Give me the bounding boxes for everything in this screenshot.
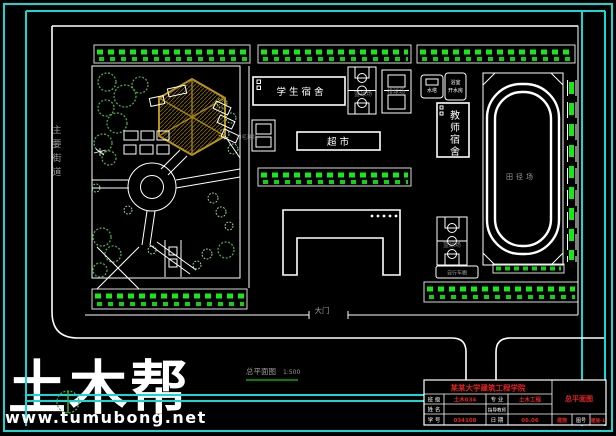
student-dorm-building: 学 生 宿 舍 xyxy=(253,77,345,105)
bike-shed-label: 自行车棚 xyxy=(447,270,467,277)
bathhouse-label: 浴室 xyxy=(450,79,460,86)
basketball-court-south: 篮球场 xyxy=(437,217,467,265)
teaching-building-dots xyxy=(371,215,398,218)
hedge-strip-bottom-west xyxy=(92,289,247,309)
caption-title: 总平面图 xyxy=(246,366,276,376)
teacher-dorm-building: 教 师 宿 舍 xyxy=(437,103,469,158)
supermarket-label: 超 市 xyxy=(327,136,350,148)
cad-site-plan-sheet: 土木帮 主 要 街 道 大门 xyxy=(0,0,616,436)
water-tower-label: 水塔 xyxy=(427,87,437,94)
park-paths xyxy=(92,136,240,289)
supermarket-building: 超 市 xyxy=(297,132,380,150)
title-block: 某某大学建筑工程学院 总平面图 班 级 土木034 专 业 土木工程 姓 名 指… xyxy=(424,380,606,425)
teacher-dorm-char: 宿 xyxy=(450,133,460,146)
street-char: 街 xyxy=(52,152,61,164)
site-plan-drawing: 土木帮 主 要 街 道 大门 xyxy=(0,0,616,436)
running-track: 田径场 xyxy=(483,73,563,265)
bike-shed: 自行车棚 xyxy=(436,266,478,278)
major-label: 专 业 xyxy=(491,396,504,404)
volleyball-label: 排球场 xyxy=(387,88,405,96)
gate-label: 大门 xyxy=(315,305,330,315)
basketball-label: 篮球场 xyxy=(354,90,372,98)
sheet-no-label: 图号 xyxy=(576,418,586,424)
date-value: 06.06 xyxy=(521,418,539,424)
sheet-type-value: 建施 xyxy=(556,417,567,424)
water-tower-building: 水塔 xyxy=(421,75,443,98)
advisor-label: 指导教师 xyxy=(488,407,507,414)
name-label: 姓 名 xyxy=(428,406,441,414)
roundabout-outer xyxy=(128,163,176,211)
volleyball-court: 排球场 xyxy=(382,70,411,113)
pavilion xyxy=(159,79,225,155)
street-char: 道 xyxy=(52,166,61,178)
teacher-dorm-char: 师 xyxy=(450,121,460,134)
teacher-dorm-char: 教 xyxy=(450,109,460,122)
class-value: 土木034 xyxy=(454,396,477,404)
badminton-court: 羽毛球场 xyxy=(236,120,275,151)
street-char: 要 xyxy=(52,139,61,150)
track-field-label: 田径场 xyxy=(506,172,536,181)
main-street-label: 主 要 街 道 xyxy=(52,124,61,178)
street-char: 主 xyxy=(52,124,61,136)
caption: 总平面图 1:500 xyxy=(246,366,300,380)
date-label: 日 期 xyxy=(491,417,504,424)
teaching-building xyxy=(283,210,400,275)
basketball-label: 篮球场 xyxy=(443,241,461,249)
boiler-room-label: 开水房 xyxy=(448,87,463,94)
class-label: 班 级 xyxy=(428,396,441,404)
hedge-strip-middle xyxy=(258,168,411,186)
project-title: 某某大学建筑工程学院 xyxy=(451,383,526,393)
id-value: 034108 xyxy=(454,418,477,424)
hedge-strip-track-east xyxy=(568,80,577,262)
caption-scale: 1:500 xyxy=(283,369,300,376)
bathhouse-building: 浴室 开水房 xyxy=(445,73,466,100)
watermark-url: www.tumubong.net xyxy=(5,408,207,427)
roundabout-inner xyxy=(141,176,164,199)
sheet-no-value: 建施-1 xyxy=(590,417,605,424)
hedge-strip-top-3 xyxy=(417,45,575,63)
major-value: 土木工程 xyxy=(519,396,542,404)
teacher-dorm-char: 舍 xyxy=(450,145,460,158)
badminton-label: 羽毛球场 xyxy=(236,133,259,141)
id-label: 学 号 xyxy=(428,416,441,424)
drawing-name: 总平面图 xyxy=(565,394,593,403)
park xyxy=(92,66,240,289)
hedge-strip-top-2 xyxy=(258,45,411,63)
hedge-strip-top-1 xyxy=(94,45,250,63)
hedge-strip-bottom-east xyxy=(424,282,578,302)
student-dorm-label: 学 生 宿 舍 xyxy=(276,86,324,98)
basketball-court-north: 篮球场 xyxy=(348,67,376,114)
